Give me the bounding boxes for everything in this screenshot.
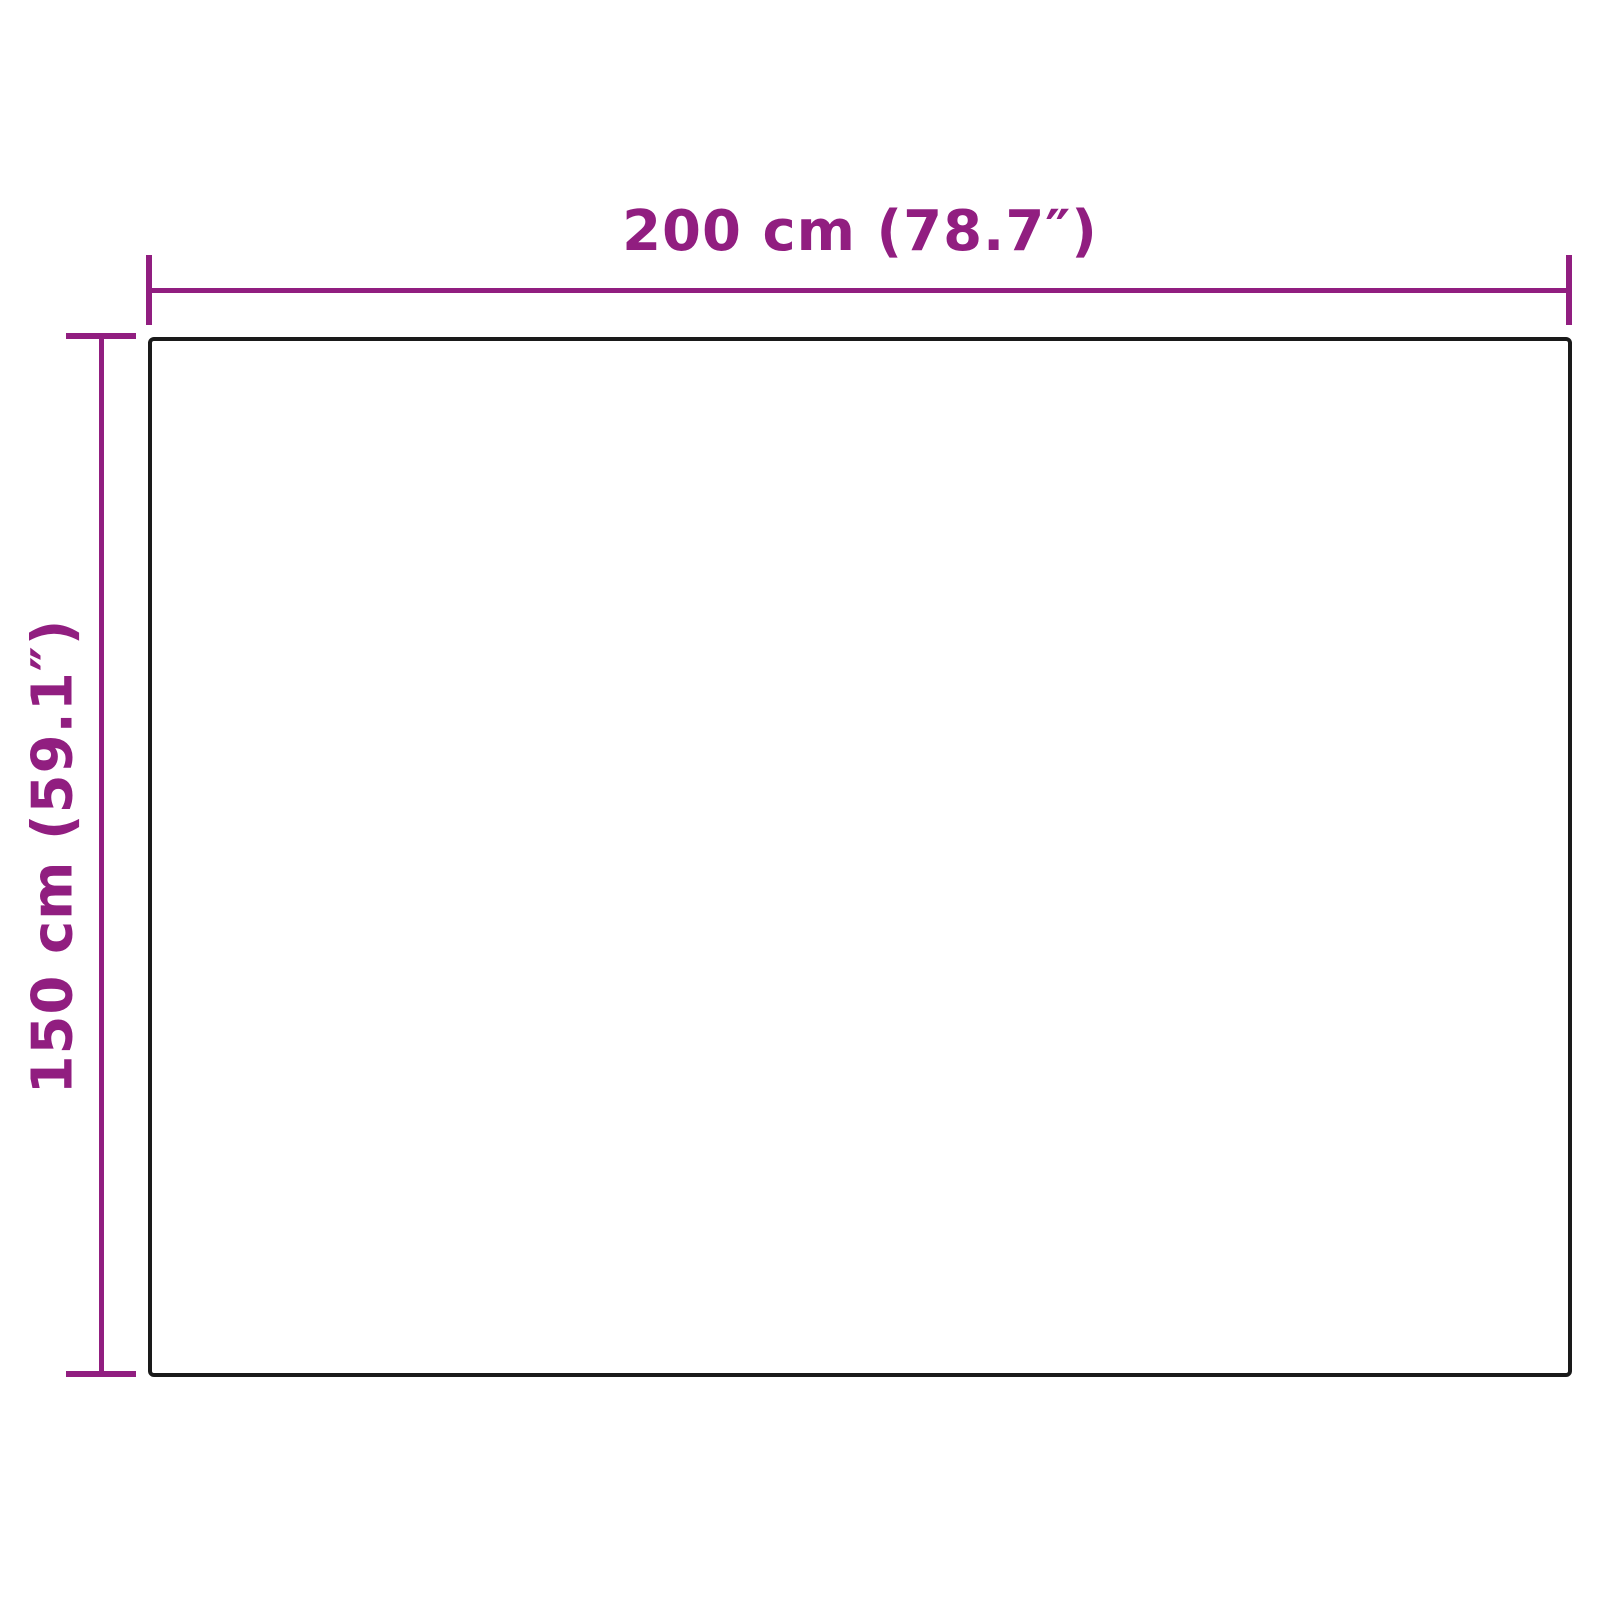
product-outline-rectangle xyxy=(148,337,1572,1377)
height-dimension-line xyxy=(99,336,104,1374)
width-dimension-line xyxy=(149,288,1569,293)
width-dimension-label: 200 cm (78.7″) xyxy=(622,199,1098,264)
dimension-diagram: 200 cm (78.7″) 150 cm (59.1″) xyxy=(0,0,1600,1600)
height-dimension-label: 150 cm (59.1″) xyxy=(21,618,86,1094)
